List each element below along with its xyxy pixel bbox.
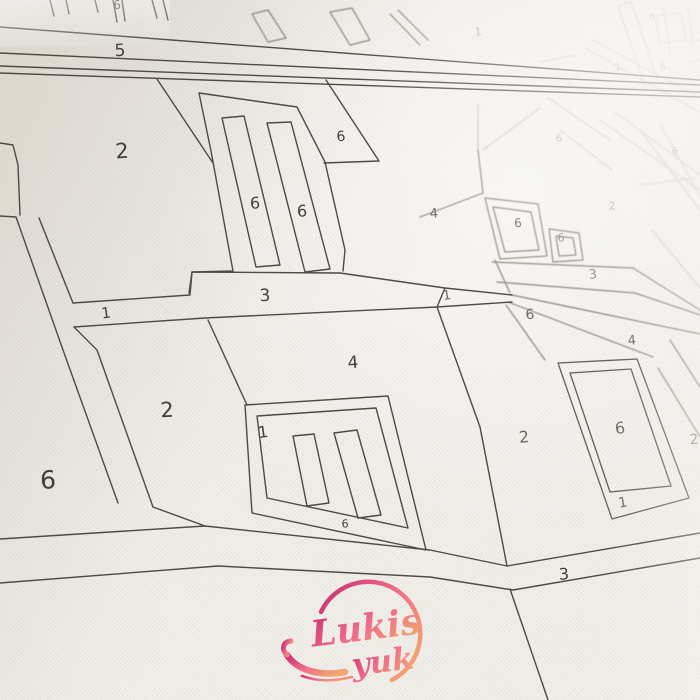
region-number-3: 3: [259, 286, 271, 307]
region-number-6: 6: [249, 193, 260, 213]
region-number-2: 2: [114, 139, 129, 164]
logo-swash-curl: [284, 641, 291, 655]
region-number-1: 1: [100, 303, 112, 322]
brand-logo: Lukis yuk: [284, 582, 424, 684]
right-edge-haze: [610, 0, 700, 700]
region-number-6: 6: [296, 201, 307, 221]
region-number-6: 6: [341, 517, 349, 530]
logo-word-yuk: yuk: [349, 640, 416, 683]
region-number-2: 2: [518, 427, 530, 447]
region-number-6: 6: [40, 465, 57, 495]
top-left-highlight: [0, 0, 170, 46]
paint-by-number-canvas-photo: 65266631421662361241634661166626 Lukis y…: [0, 0, 700, 700]
region-number-1: 1: [257, 422, 270, 442]
region-number-4: 4: [347, 353, 359, 374]
logo-swash: [287, 655, 345, 673]
region-number-3: 3: [558, 564, 569, 584]
region-number-6: 6: [336, 129, 346, 146]
region-number-2: 2: [160, 398, 175, 423]
